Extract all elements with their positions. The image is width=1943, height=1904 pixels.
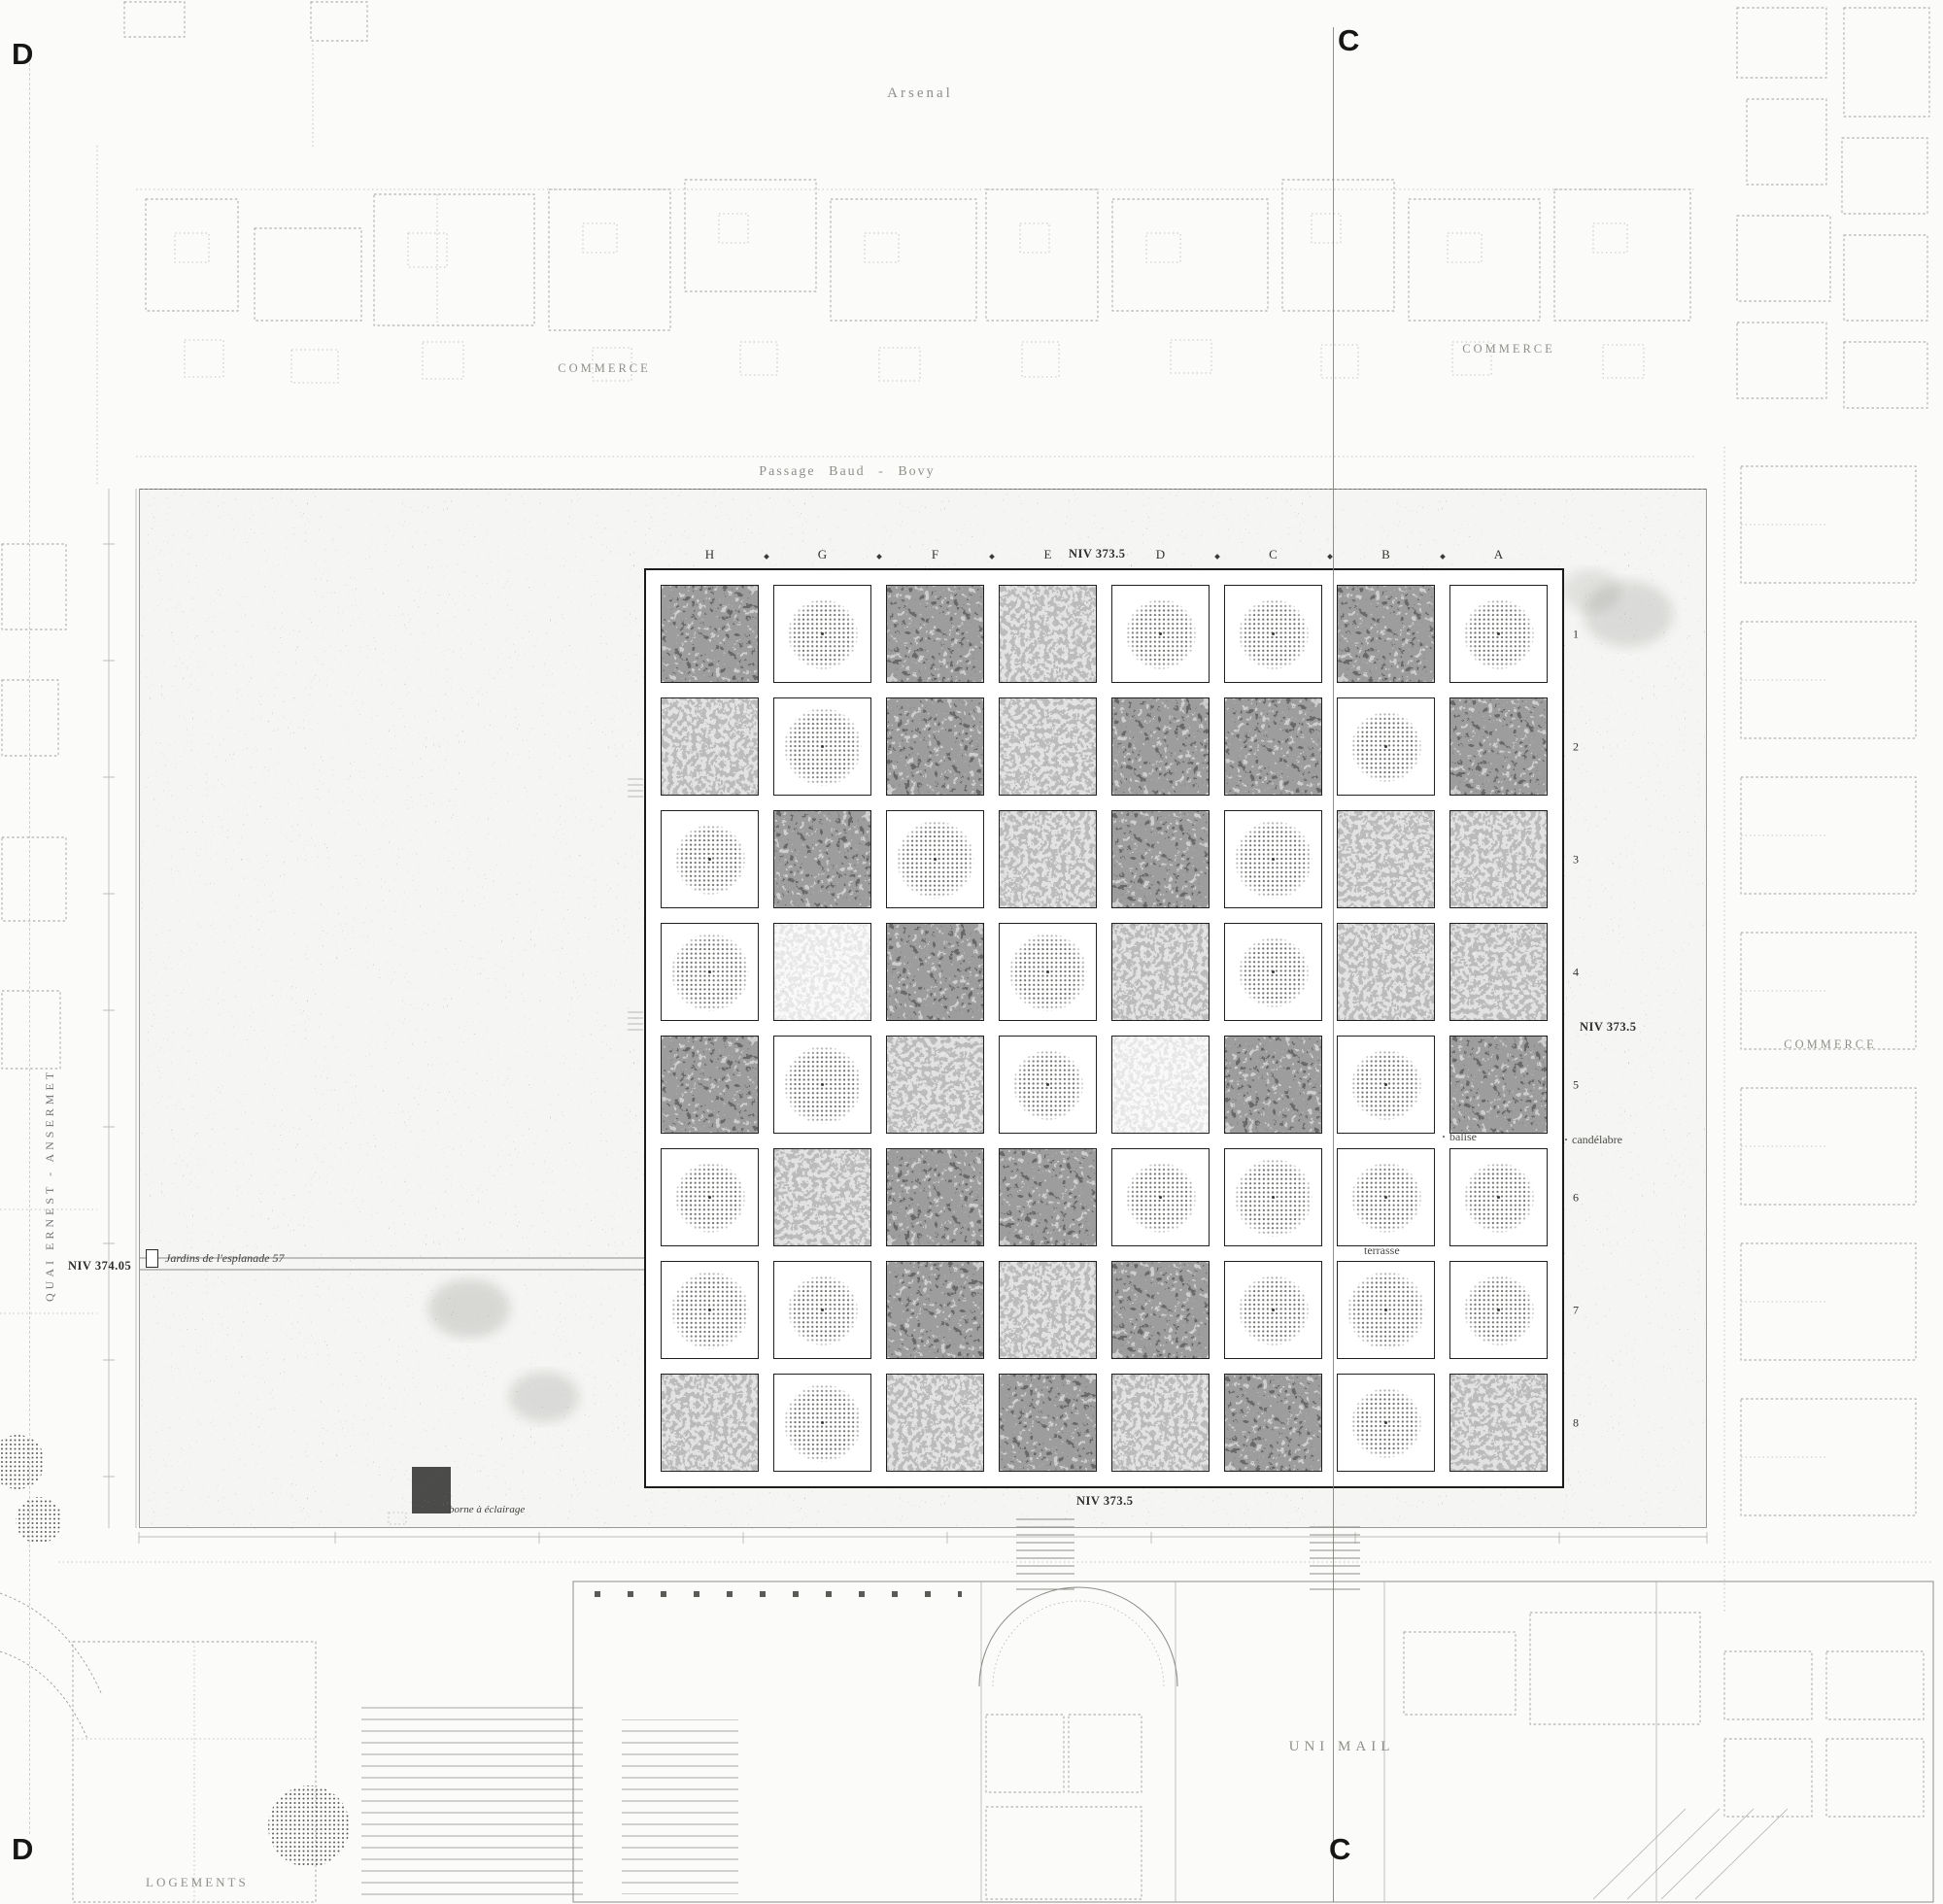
grid-tile-photo bbox=[999, 1261, 1097, 1359]
photo-texture bbox=[887, 1036, 983, 1134]
grid-tile-tree bbox=[661, 810, 759, 908]
grid-tile-photo bbox=[886, 1036, 984, 1134]
grid-tile-photo bbox=[886, 697, 984, 796]
tree-canopy-icon bbox=[1239, 1275, 1309, 1345]
grid-tile-tree bbox=[773, 1036, 871, 1134]
tree-canopy-icon bbox=[1009, 934, 1087, 1011]
commerce-label-top-left: COMMERCE bbox=[558, 361, 651, 376]
grid-tile-photo bbox=[773, 810, 871, 908]
niv-373-5-label-bottom: NIV 373.5 bbox=[1076, 1494, 1133, 1509]
grid-tile-photo bbox=[1449, 697, 1548, 796]
grid-tile-photo bbox=[661, 697, 759, 796]
grid-tile-photo bbox=[999, 585, 1097, 683]
grid-tile-photo bbox=[1449, 923, 1548, 1021]
garden-tile-grid bbox=[661, 585, 1548, 1472]
commerce-label-top-right: COMMERCE bbox=[1462, 342, 1555, 357]
tree-canopy-icon bbox=[1013, 1050, 1083, 1120]
photo-texture bbox=[661, 1375, 759, 1471]
photo-texture bbox=[1000, 697, 1096, 796]
grid-tile-photo bbox=[661, 1036, 759, 1134]
tree-canopy-icon bbox=[1239, 937, 1309, 1007]
tree-canopy-icon bbox=[1464, 599, 1534, 669]
photo-texture bbox=[1449, 1037, 1548, 1133]
grid-tile-tree bbox=[999, 923, 1097, 1021]
photo-texture bbox=[999, 811, 1097, 907]
tree-canopy-icon bbox=[1235, 821, 1312, 899]
photo-texture bbox=[1449, 811, 1548, 907]
grid-tile-photo bbox=[999, 697, 1097, 796]
balise-label: balise bbox=[1442, 1130, 1477, 1144]
grid-tile-photo bbox=[1111, 810, 1210, 908]
niv-373-5-label-right: NIV 373.5 bbox=[1580, 1020, 1636, 1035]
uni-mail-label: UNI MAIL bbox=[1289, 1739, 1395, 1755]
tree-canopy-icon bbox=[1347, 1272, 1425, 1349]
tree-canopy-icon bbox=[675, 825, 745, 895]
tree-canopy-icon bbox=[1464, 1275, 1534, 1345]
grid-tile-photo bbox=[1337, 585, 1435, 683]
logements-label: LOGEMENTS bbox=[146, 1875, 249, 1890]
photo-texture bbox=[1337, 924, 1435, 1020]
section-marker-c-top: C bbox=[1338, 23, 1359, 58]
commerce-label-right: COMMERCE bbox=[1784, 1037, 1877, 1052]
grid-tile-photo bbox=[661, 1374, 759, 1472]
grid-column-letter: B bbox=[1381, 547, 1390, 562]
grid-tile-photo bbox=[1111, 1374, 1210, 1472]
grid-tile-photo bbox=[1449, 1036, 1548, 1134]
niv-373-5-label-top: NIV 373.5 bbox=[1069, 547, 1125, 561]
photo-texture bbox=[1112, 1036, 1209, 1134]
tree-canopy-icon bbox=[784, 708, 862, 786]
grid-tile-photo bbox=[886, 585, 984, 683]
photo-texture bbox=[1111, 698, 1210, 795]
photo-texture bbox=[774, 923, 870, 1021]
photo-texture bbox=[1112, 810, 1209, 908]
grid-tile-photo bbox=[1449, 810, 1548, 908]
grid-tile-tree bbox=[1111, 1148, 1210, 1246]
section-marker-c-bottom: C bbox=[1329, 1832, 1350, 1867]
grid-tile-photo bbox=[1111, 923, 1210, 1021]
grid-tile-photo bbox=[1337, 810, 1435, 908]
tree-canopy-icon bbox=[788, 599, 858, 669]
section-line-d bbox=[29, 58, 31, 1834]
photo-texture bbox=[662, 585, 758, 683]
grid-tile-tree bbox=[886, 810, 984, 908]
grid-row-number: 7 bbox=[1573, 1303, 1579, 1317]
grid-column-letter: H bbox=[705, 547, 714, 562]
grid-tile-tree bbox=[1449, 585, 1548, 683]
photo-texture bbox=[662, 1036, 758, 1134]
quai-ernest-ansermet-label: QUAI ERNEST - ANSERMET bbox=[43, 1010, 57, 1302]
grid-tile-photo bbox=[886, 1148, 984, 1246]
tree-canopy-icon bbox=[1126, 599, 1196, 669]
photo-texture bbox=[887, 1261, 983, 1359]
grid-tile-photo bbox=[1111, 697, 1210, 796]
photo-texture bbox=[887, 585, 983, 683]
photo-texture bbox=[1450, 923, 1547, 1021]
grid-tile-photo bbox=[999, 810, 1097, 908]
grid-row-number: 5 bbox=[1573, 1077, 1579, 1092]
grid-tile-photo bbox=[661, 585, 759, 683]
grid-row-number: 1 bbox=[1573, 627, 1579, 641]
grid-tile-tree bbox=[1111, 585, 1210, 683]
photo-texture bbox=[999, 586, 1097, 682]
grid-tile-photo bbox=[1449, 1374, 1548, 1472]
tree-canopy-icon bbox=[1239, 599, 1309, 669]
tree-canopy-icon bbox=[671, 1272, 749, 1349]
grid-row-number: 6 bbox=[1573, 1190, 1579, 1205]
section-marker-d-top: D bbox=[12, 37, 33, 72]
grid-tile-tree bbox=[1224, 923, 1322, 1021]
grid-tile-tree bbox=[999, 1036, 1097, 1134]
grid-tile-photo bbox=[1224, 697, 1322, 796]
grid-tile-photo bbox=[773, 1148, 871, 1246]
tree-canopy-icon bbox=[1351, 712, 1421, 782]
photo-texture bbox=[1112, 1261, 1209, 1359]
garden-grid-frame bbox=[644, 568, 1564, 1488]
grid-tile-photo bbox=[999, 1148, 1097, 1246]
terrasse-label: terrasse bbox=[1364, 1243, 1400, 1258]
tree-canopy-icon bbox=[1351, 1050, 1421, 1120]
grid-tile-photo bbox=[886, 1374, 984, 1472]
grid-tile-photo bbox=[886, 923, 984, 1021]
grid-tile-tree bbox=[1337, 1374, 1435, 1472]
site-plan: HGFEDCBA12345678 Arsenal Passage Baud - … bbox=[0, 0, 1943, 1904]
grid-column-letter: G bbox=[818, 547, 827, 562]
grid-tile-tree bbox=[1337, 1036, 1435, 1134]
tree-canopy-icon bbox=[784, 1384, 862, 1462]
photo-texture bbox=[1450, 697, 1547, 796]
grid-tile-tree bbox=[1224, 810, 1322, 908]
grid-column-letter: E bbox=[1044, 547, 1052, 562]
photo-texture bbox=[999, 1262, 1097, 1358]
borne-eclairage-label: borne à éclairage bbox=[449, 1504, 525, 1515]
photo-texture bbox=[1111, 924, 1210, 1020]
photo-texture bbox=[1000, 1374, 1096, 1472]
grid-tile-photo bbox=[886, 1261, 984, 1359]
esplanade-note-symbol bbox=[146, 1249, 158, 1268]
arsenal-label: Arsenal bbox=[887, 85, 953, 102]
grid-tile-tree bbox=[773, 697, 871, 796]
tree-canopy-icon bbox=[788, 1275, 858, 1345]
tree-canopy-icon bbox=[1351, 1388, 1421, 1458]
photo-texture bbox=[1225, 697, 1321, 796]
grid-tile-tree bbox=[1224, 585, 1322, 683]
tree-canopy-icon bbox=[784, 1046, 862, 1124]
grid-tile-tree bbox=[1337, 1261, 1435, 1359]
photo-texture bbox=[886, 1149, 984, 1245]
tree-canopy-icon bbox=[1126, 1163, 1196, 1233]
photo-texture bbox=[1338, 810, 1434, 908]
photo-texture bbox=[886, 924, 984, 1020]
grid-tile-tree bbox=[773, 1374, 871, 1472]
grid-row-number: 2 bbox=[1573, 739, 1579, 754]
grid-tile-photo bbox=[999, 1374, 1097, 1472]
grid-tile-tree bbox=[1449, 1261, 1548, 1359]
section-line-c bbox=[1333, 27, 1334, 1902]
grid-tile-photo bbox=[1111, 1261, 1210, 1359]
grid-tile-tree bbox=[661, 1148, 759, 1246]
photo-texture bbox=[773, 811, 871, 907]
tree-canopy-icon bbox=[897, 821, 974, 899]
grid-tile-photo bbox=[1337, 923, 1435, 1021]
photo-texture bbox=[1000, 1148, 1096, 1246]
grid-tile-tree bbox=[773, 1261, 871, 1359]
grid-row-number: 4 bbox=[1573, 965, 1579, 979]
esplanade-note-label: Jardins de l'esplanade 57 bbox=[165, 1251, 284, 1266]
tree-canopy-icon bbox=[1235, 1159, 1312, 1237]
grid-tile-photo bbox=[1224, 1036, 1322, 1134]
grid-column-letter: D bbox=[1156, 547, 1165, 562]
photo-texture bbox=[661, 698, 759, 795]
photo-texture bbox=[1450, 1374, 1547, 1472]
grid-row-number: 8 bbox=[1573, 1415, 1579, 1430]
grid-tile-photo bbox=[1224, 1374, 1322, 1472]
grid-tile-tree bbox=[661, 1261, 759, 1359]
photo-texture bbox=[1111, 1375, 1210, 1471]
grid-tile-tree bbox=[1224, 1148, 1322, 1246]
grid-tile-tree bbox=[1337, 697, 1435, 796]
tree-canopy-icon bbox=[1351, 1163, 1421, 1233]
tree-canopy-icon bbox=[675, 1163, 745, 1233]
niv-374-05-label: NIV 374.05 bbox=[68, 1259, 131, 1274]
grid-row-number: 3 bbox=[1573, 852, 1579, 867]
tree-canopy-icon bbox=[1464, 1163, 1534, 1233]
grid-column-letter: A bbox=[1494, 547, 1503, 562]
grid-tile-photo bbox=[773, 923, 871, 1021]
grid-tile-photo bbox=[1111, 1036, 1210, 1134]
passage-baud-bovy-label: Passage Baud - Bovy bbox=[759, 464, 935, 480]
photo-texture bbox=[886, 698, 984, 795]
photo-texture bbox=[1224, 1037, 1322, 1133]
photo-texture bbox=[1338, 585, 1434, 683]
grid-tile-tree bbox=[1337, 1148, 1435, 1246]
grid-tile-tree bbox=[1449, 1148, 1548, 1246]
grid-tile-tree bbox=[661, 923, 759, 1021]
grid-tile-tree bbox=[1224, 1261, 1322, 1359]
grid-column-letter: F bbox=[932, 547, 938, 562]
candelabre-label: candélabre bbox=[1564, 1133, 1622, 1147]
section-marker-d-bottom: D bbox=[12, 1832, 33, 1867]
photo-texture bbox=[1225, 1374, 1321, 1472]
photo-texture bbox=[774, 1148, 870, 1246]
grid-tile-tree bbox=[773, 585, 871, 683]
photo-texture bbox=[886, 1375, 984, 1471]
tree-canopy-icon bbox=[671, 934, 749, 1011]
grid-column-letter: C bbox=[1269, 547, 1278, 562]
